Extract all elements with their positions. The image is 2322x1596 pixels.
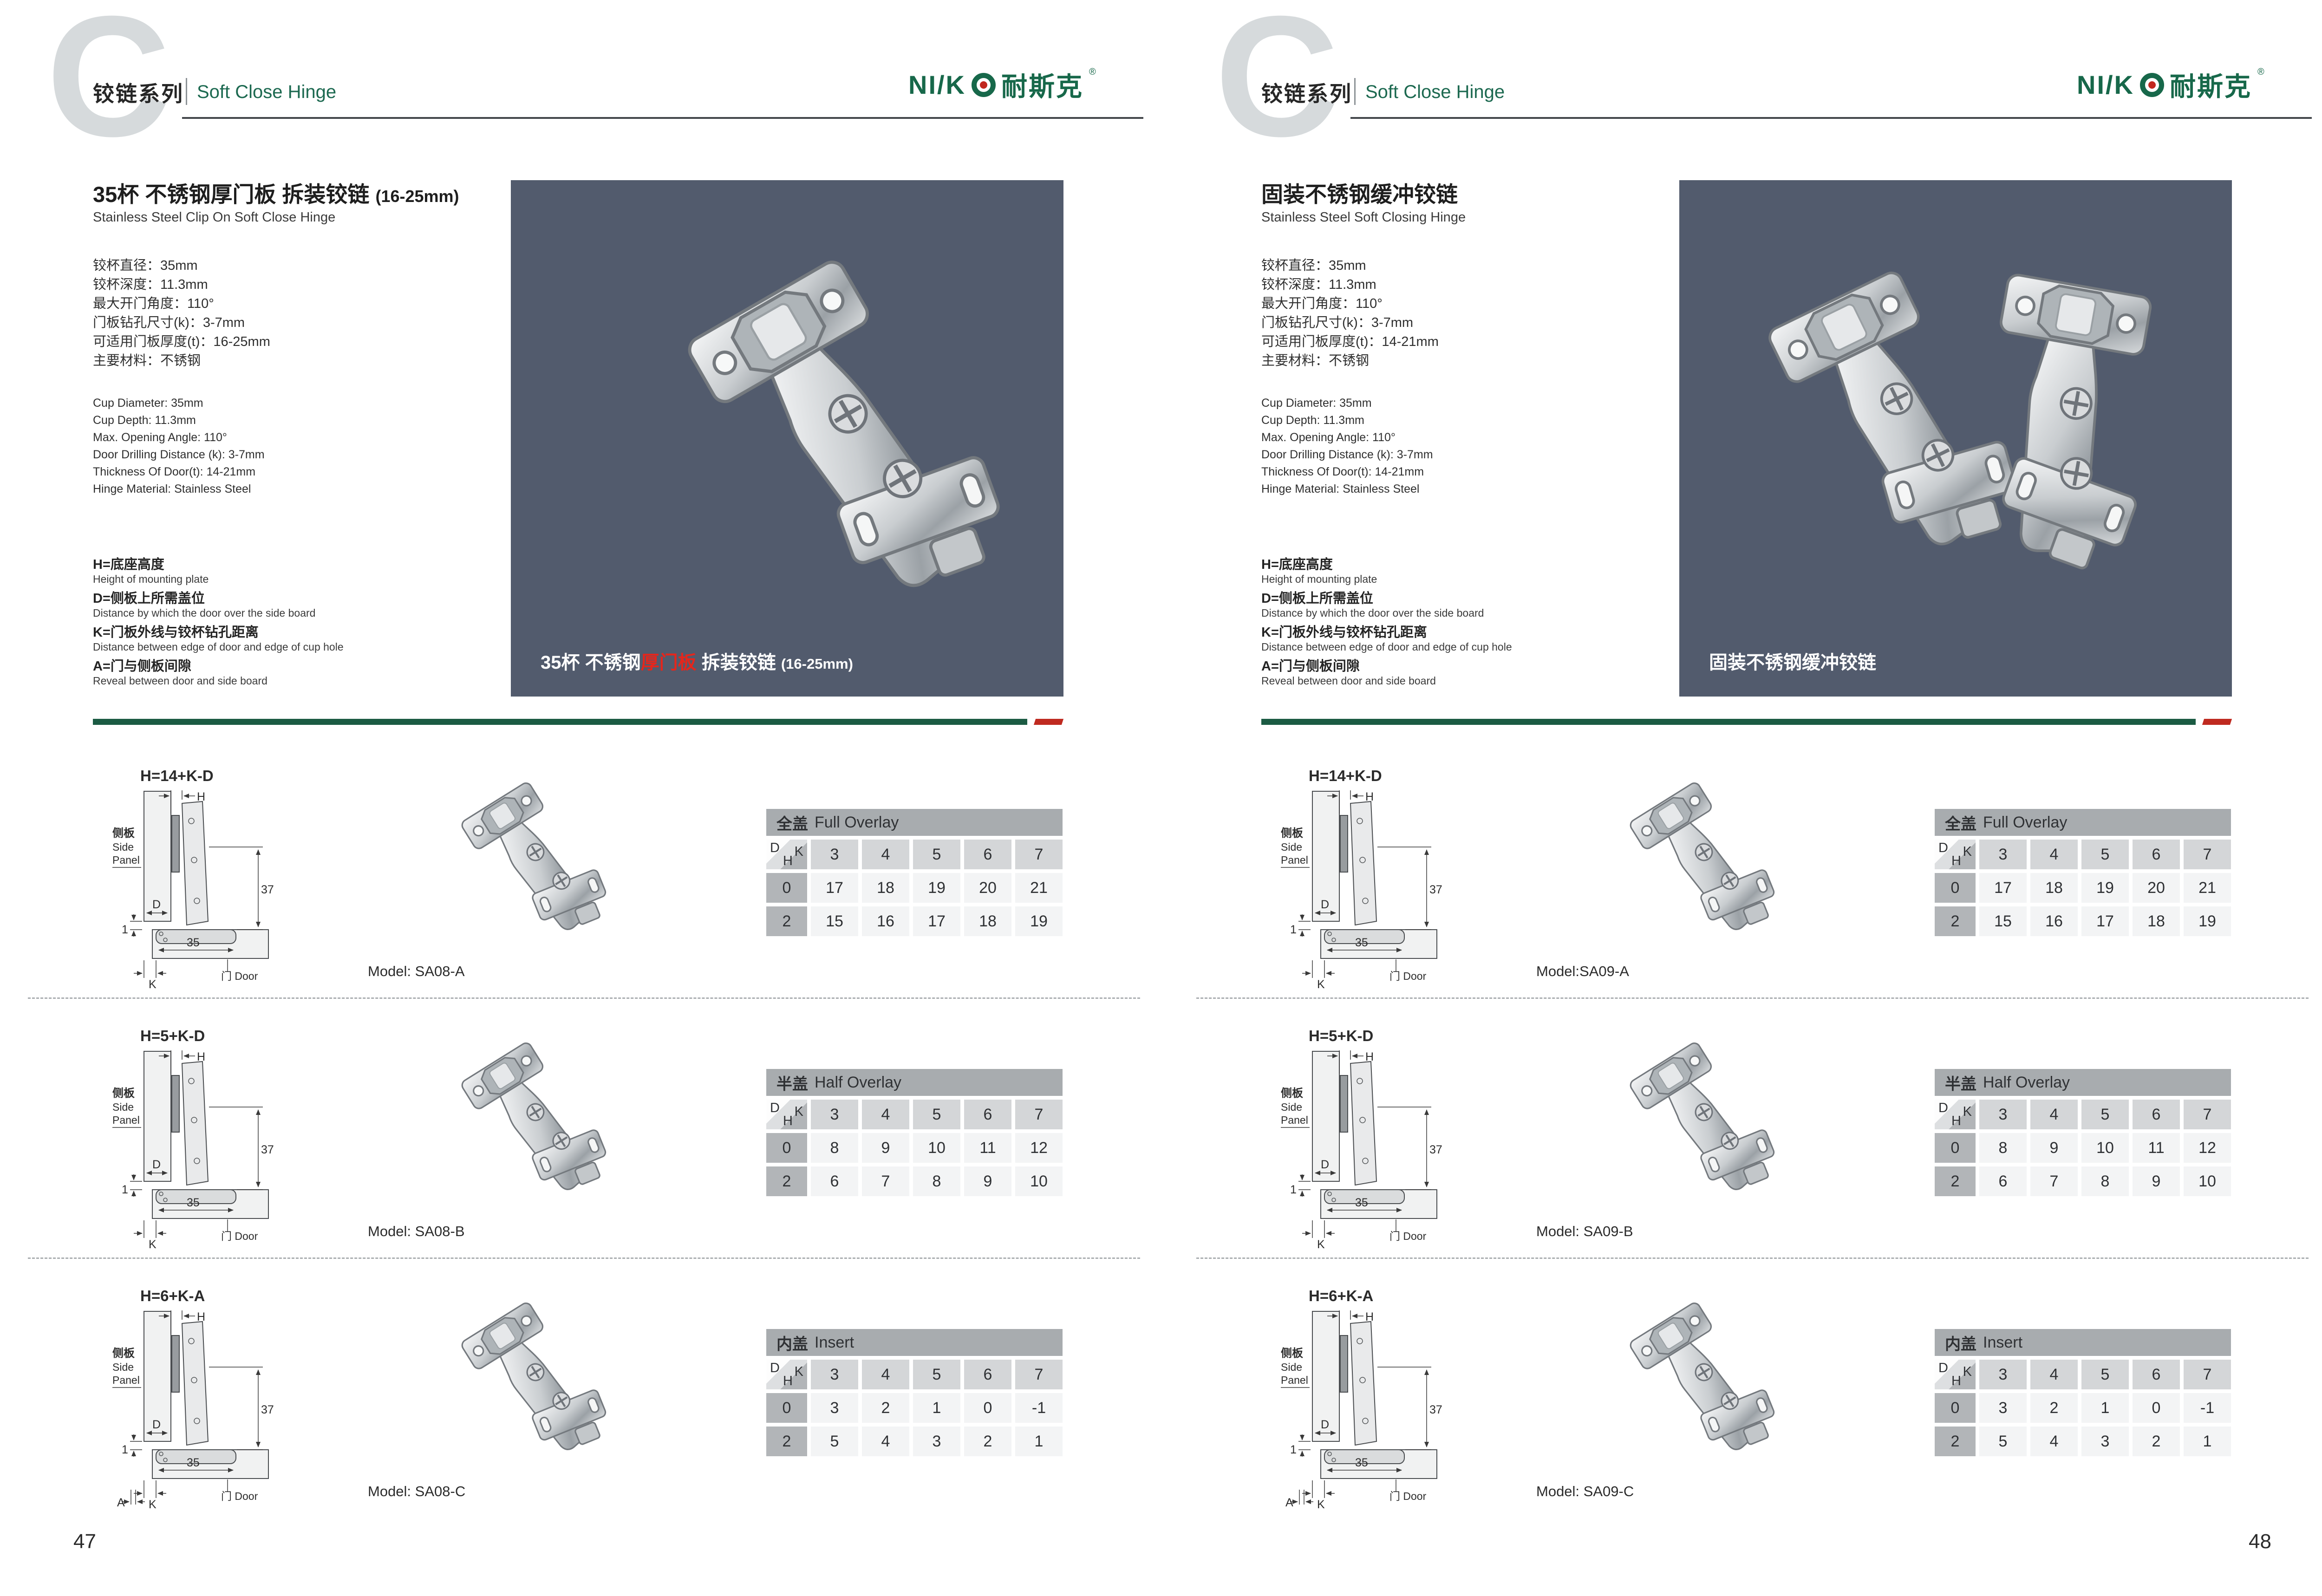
h-row-label: 2 bbox=[1935, 906, 1976, 936]
section-divider-green bbox=[93, 719, 1027, 725]
side-panel-label-en2: Panel bbox=[1281, 1114, 1308, 1126]
model-number: Model: SA08-B bbox=[368, 1223, 465, 1240]
table-value: 19 bbox=[1015, 906, 1063, 936]
product-title-cn-text: 固装不锈钢缓冲铰链 bbox=[1261, 182, 1458, 207]
series-title-cn: 铰链系列 bbox=[1261, 77, 1352, 108]
dim-1-label: 1 bbox=[122, 1183, 128, 1196]
header-rule bbox=[182, 117, 1143, 119]
corner-k: K bbox=[795, 1104, 803, 1120]
dim-35-label: 35 bbox=[1355, 936, 1368, 949]
spec-list-en: Cup Diameter: 35mm Cup Depth: 11.3mm Max… bbox=[93, 395, 265, 498]
dim-k-label: K bbox=[149, 1498, 157, 1511]
dim-37-label: 37 bbox=[1429, 1403, 1442, 1416]
side-panel-label-en1: Side bbox=[112, 1361, 134, 1373]
photo-caption: 35杯 不锈钢厚门板 拆装铰链 (16-25mm) bbox=[541, 647, 853, 674]
legend-d-en: Distance by which the door over the side… bbox=[93, 606, 344, 619]
dim-37-label: 37 bbox=[1429, 883, 1442, 896]
corner-k: K bbox=[795, 1364, 803, 1380]
k-header-cell: 4 bbox=[862, 840, 909, 869]
table-value: 10 bbox=[2081, 1133, 2129, 1163]
k-header-cell: 5 bbox=[913, 1100, 960, 1129]
hinge-dimension-diagram: A H D 1 37 35 K 侧板 Side Panel 门 Door bbox=[1280, 1307, 1447, 1511]
brand-logo-latin: NI/K bbox=[2077, 70, 2134, 100]
table-value: 10 bbox=[1015, 1166, 1063, 1196]
product-title-range: (16-25mm) bbox=[375, 187, 459, 206]
table-value: 19 bbox=[2184, 906, 2231, 936]
dim-d-label: D bbox=[152, 898, 161, 911]
mounting-plate-shape bbox=[1340, 1335, 1348, 1392]
brand-logo-o-icon bbox=[2140, 73, 2164, 97]
h-row-label: 2 bbox=[766, 1427, 807, 1456]
mounting-height-formula: H=6+K-A bbox=[1309, 1287, 1373, 1305]
table-value: 8 bbox=[913, 1166, 960, 1196]
page-number: 48 bbox=[2249, 1530, 2271, 1553]
table-value: 6 bbox=[1979, 1166, 2027, 1196]
model-number: Model:SA09-A bbox=[1536, 963, 1629, 980]
dim-1-label: 1 bbox=[1290, 1183, 1297, 1196]
dim-35-label: 35 bbox=[1355, 1196, 1368, 1209]
table-value: 1 bbox=[2184, 1427, 2231, 1456]
brand-logo: NI/K 耐斯克 ® bbox=[2077, 66, 2264, 104]
h-row-label: 2 bbox=[766, 906, 807, 936]
dim-h-label: H bbox=[1365, 790, 1374, 803]
corner-d: D bbox=[1938, 1101, 1948, 1116]
table-value: 5 bbox=[1979, 1427, 2027, 1456]
table-value: 18 bbox=[862, 873, 909, 903]
k-header-cell: 7 bbox=[2184, 1360, 2231, 1389]
h-row-label: 0 bbox=[766, 1133, 807, 1163]
k-header-cell: 6 bbox=[2133, 840, 2180, 869]
door-label: 门 Door bbox=[1389, 1490, 1427, 1502]
h-row-label: 0 bbox=[766, 873, 807, 903]
table-value: 15 bbox=[1979, 906, 2027, 936]
page-number: 47 bbox=[73, 1530, 96, 1553]
hinge-arm-shape bbox=[1350, 1322, 1376, 1445]
table-corner-cell: D K H bbox=[1935, 1100, 1976, 1129]
corner-h: H bbox=[1951, 853, 1961, 869]
row-divider-dashed bbox=[1196, 1257, 2309, 1259]
dim-d-label: D bbox=[152, 1158, 161, 1171]
photo-caption-range: (16-25mm) bbox=[781, 656, 853, 672]
k-header-cell: 4 bbox=[2030, 1360, 2078, 1389]
table-value: 12 bbox=[1015, 1133, 1063, 1163]
photo-caption-post: 拆装铰链 bbox=[697, 652, 781, 673]
overlay-table-title-cn: 内盖 bbox=[776, 1331, 808, 1354]
brand-logo-cn: 耐斯克 bbox=[2170, 66, 2252, 104]
hinge-arm-shape bbox=[1350, 801, 1376, 925]
table-value: 8 bbox=[2081, 1166, 2129, 1196]
overlay-table-grid: D K H 3 4 5 6 7 0 3 2 1 0 -1 2 5 4 3 2 bbox=[1935, 1360, 2231, 1456]
table-value: 3 bbox=[811, 1393, 858, 1423]
spec-list-cn: 铰杯直径：35mm 铰杯深度：11.3mm 最大开门角度：110° 门板钻孔尺寸… bbox=[93, 256, 270, 371]
legend-k-en: Distance between edge of door and edge o… bbox=[1261, 640, 1512, 653]
brand-logo: NI/K 耐斯克 ® bbox=[908, 66, 1096, 104]
mounting-plate-shape bbox=[172, 1075, 179, 1132]
table-value: 1 bbox=[1015, 1427, 1063, 1456]
corner-h: H bbox=[1951, 1114, 1961, 1129]
product-title-en: Stainless Steel Clip On Soft Close Hinge bbox=[93, 210, 335, 225]
legend-k-cn: K=门板外线与铰杯钻孔距离 bbox=[1261, 625, 1512, 640]
table-value: 15 bbox=[811, 906, 858, 936]
overlay-table-title: 内盖 Insert bbox=[1935, 1329, 2231, 1356]
overlay-table-title-en: Full Overlay bbox=[815, 814, 899, 832]
row-divider-dashed bbox=[28, 997, 1140, 999]
k-header-cell: 7 bbox=[2184, 1100, 2231, 1129]
legend-d-cn: D=侧板上所需盖位 bbox=[1261, 591, 1512, 606]
overlay-table-title: 全盖 Full Overlay bbox=[1935, 809, 2231, 836]
table-value: 21 bbox=[1015, 873, 1063, 903]
k-header-cell: 6 bbox=[2133, 1360, 2180, 1389]
table-value: 17 bbox=[811, 873, 858, 903]
h-row-label: 0 bbox=[766, 1393, 807, 1423]
legend-d-en: Distance by which the door over the side… bbox=[1261, 606, 1512, 619]
table-value: 7 bbox=[2030, 1166, 2078, 1196]
table-value: 17 bbox=[913, 906, 960, 936]
photo-caption: 固装不锈钢缓冲铰链 bbox=[1709, 647, 1876, 674]
legend-a-en: Reveal between door and side board bbox=[1261, 674, 1512, 687]
k-header-cell: 6 bbox=[964, 840, 1011, 869]
table-value: 2 bbox=[2133, 1427, 2180, 1456]
table-value: 7 bbox=[862, 1166, 909, 1196]
mounting-plate-shape bbox=[172, 1335, 179, 1392]
dim-h-label: H bbox=[197, 1310, 205, 1323]
side-panel-label-cn: 侧板 bbox=[1281, 827, 1304, 840]
overlay-table-title: 半盖 Half Overlay bbox=[766, 1069, 1063, 1096]
dim-d-label: D bbox=[1321, 1418, 1329, 1431]
legend-h-en: Height of mounting plate bbox=[1261, 573, 1512, 586]
registered-mark: ® bbox=[2257, 67, 2264, 78]
mounting-plate-shape bbox=[1340, 815, 1348, 872]
dim-37-label: 37 bbox=[261, 883, 274, 896]
table-value: 5 bbox=[811, 1427, 858, 1456]
dim-a-label: A bbox=[1285, 1496, 1293, 1509]
legend-h-en: Height of mounting plate bbox=[93, 573, 344, 586]
model-number: Model: SA09-B bbox=[1536, 1223, 1633, 1240]
table-value: 9 bbox=[964, 1166, 1011, 1196]
table-value: 9 bbox=[862, 1133, 909, 1163]
overlay-table: 半盖 Half Overlay D K H 3 4 5 6 7 0 8 9 10… bbox=[766, 1069, 1063, 1196]
table-value: 10 bbox=[2184, 1166, 2231, 1196]
table-value: 3 bbox=[2081, 1427, 2129, 1456]
side-panel-label-en1: Side bbox=[112, 1101, 134, 1113]
dim-h-label: H bbox=[197, 1050, 205, 1063]
k-header-cell: 7 bbox=[2184, 840, 2231, 869]
photo-caption-red: 厚门板 bbox=[641, 652, 697, 673]
table-value: 2 bbox=[964, 1427, 1011, 1456]
product-photo-hinge-illustration bbox=[1679, 180, 2232, 697]
h-row-label: 0 bbox=[1935, 873, 1976, 903]
k-header-cell: 4 bbox=[862, 1360, 909, 1389]
variant-photo-hinge-illustration bbox=[381, 1010, 687, 1224]
k-header-cell: 5 bbox=[2081, 1100, 2129, 1129]
hinge-dimension-diagram: H D 1 37 35 K 侧板 Side Panel 门 Door bbox=[111, 787, 279, 991]
table-value: 3 bbox=[913, 1427, 960, 1456]
k-header-cell: 5 bbox=[913, 840, 960, 869]
table-value: 19 bbox=[913, 873, 960, 903]
hinge-variant-row: H=6+K-A bbox=[0, 1263, 1168, 1523]
product-photo: 35杯 不锈钢厚门板 拆装铰链 (16-25mm) bbox=[511, 180, 1063, 697]
dim-1-label: 1 bbox=[122, 1443, 128, 1456]
overlay-table-grid: D K H 3 4 5 6 7 0 3 2 1 0 -1 2 5 4 3 2 bbox=[766, 1360, 1063, 1456]
dim-35-label: 35 bbox=[1355, 1456, 1368, 1469]
h-row-label: 0 bbox=[1935, 1133, 1976, 1163]
legend-a-cn: A=门与侧板间隙 bbox=[93, 658, 344, 674]
k-header-cell: 5 bbox=[913, 1360, 960, 1389]
brand-logo-o-icon bbox=[972, 73, 996, 97]
side-panel-label-cn: 侧板 bbox=[112, 1087, 135, 1100]
corner-d: D bbox=[770, 1101, 780, 1116]
corner-k: K bbox=[795, 844, 803, 860]
dim-h-label: H bbox=[1365, 1310, 1374, 1323]
table-corner-cell: D K H bbox=[766, 1360, 807, 1389]
dim-37-label: 37 bbox=[261, 1143, 274, 1156]
dim-h-label: H bbox=[197, 790, 205, 803]
door-label: 门 Door bbox=[1389, 1230, 1427, 1242]
legend-a-en: Reveal between door and side board bbox=[93, 674, 344, 687]
product-photo-hinge-illustration bbox=[511, 180, 1063, 697]
header-separator bbox=[1354, 78, 1356, 105]
table-value: 18 bbox=[2133, 906, 2180, 936]
photo-caption-pre: 固装不锈钢缓冲铰链 bbox=[1709, 652, 1876, 673]
corner-k: K bbox=[1963, 1104, 1972, 1120]
dim-1-label: 1 bbox=[1290, 923, 1297, 936]
section-divider-green bbox=[1261, 719, 2196, 725]
overlay-table-title-cn: 半盖 bbox=[776, 1071, 808, 1094]
table-value: 4 bbox=[862, 1427, 909, 1456]
section-divider-red bbox=[2202, 719, 2232, 725]
hinge-dimension-diagram: H D 1 37 35 K 侧板 Side Panel 门 Door bbox=[111, 1047, 279, 1251]
k-header-cell: 5 bbox=[2081, 1360, 2129, 1389]
variant-rows: H=14+K-D bbox=[1168, 743, 2322, 1523]
overlay-table-title-cn: 内盖 bbox=[1945, 1331, 1976, 1354]
overlay-table-title-cn: 半盖 bbox=[1945, 1071, 1976, 1094]
dimension-legend: H=底座高度 Height of mounting plate D=侧板上所需盖… bbox=[93, 552, 344, 687]
door-label: 门 Door bbox=[1389, 970, 1427, 982]
table-value: 2 bbox=[2030, 1393, 2078, 1423]
hinge-variant-row: H=5+K-D bbox=[1168, 1003, 2322, 1263]
table-value: 18 bbox=[2030, 873, 2078, 903]
k-header-cell: 4 bbox=[862, 1100, 909, 1129]
dim-d-label: D bbox=[1321, 898, 1329, 911]
dim-a-label: A bbox=[117, 1496, 125, 1509]
overlay-table-title: 内盖 Insert bbox=[766, 1329, 1063, 1356]
model-number: Model: SA08-A bbox=[368, 963, 465, 980]
row-divider-dashed bbox=[1196, 997, 2309, 999]
dim-a-group: A bbox=[1285, 1490, 1313, 1509]
corner-h: H bbox=[783, 1114, 793, 1129]
table-corner-cell: D K H bbox=[1935, 840, 1976, 869]
hinge-arm-shape bbox=[182, 1062, 208, 1185]
dimension-legend: H=底座高度 Height of mounting plate D=侧板上所需盖… bbox=[1261, 552, 1512, 687]
header-rule bbox=[1350, 117, 2312, 119]
header-separator bbox=[186, 78, 187, 105]
table-corner-cell: D K H bbox=[766, 1100, 807, 1129]
table-value: 20 bbox=[2133, 873, 2180, 903]
legend-k-en: Distance between edge of door and edge o… bbox=[93, 640, 344, 653]
legend-d-cn: D=侧板上所需盖位 bbox=[93, 591, 344, 606]
catalog-page-right: C 铰链系列 Soft Close Hinge NI/K 耐斯克 ® 固装不锈钢… bbox=[1168, 0, 2322, 1596]
dim-1-label: 1 bbox=[122, 923, 128, 936]
variant-photo-hinge-illustration bbox=[381, 750, 687, 964]
table-value: 1 bbox=[913, 1393, 960, 1423]
side-panel-label-en2: Panel bbox=[112, 854, 140, 866]
table-value: 9 bbox=[2133, 1166, 2180, 1196]
overlay-table-title: 全盖 Full Overlay bbox=[766, 809, 1063, 836]
dim-35-label: 35 bbox=[187, 1456, 200, 1469]
hinge-arm-shape bbox=[182, 1322, 208, 1445]
product-title-en: Stainless Steel Soft Closing Hinge bbox=[1261, 210, 1466, 225]
overlay-table-title-en: Full Overlay bbox=[1983, 814, 2067, 832]
mounting-plate-shape bbox=[172, 815, 179, 872]
side-panel-label-en1: Side bbox=[1281, 841, 1302, 853]
brand-logo-dot-icon bbox=[980, 81, 987, 89]
hinge-variant-row: H=14+K-D bbox=[1168, 743, 2322, 1003]
spec-list-en: Cup Diameter: 35mm Cup Depth: 11.3mm Max… bbox=[1261, 395, 1433, 498]
brand-logo-cn: 耐斯克 bbox=[1001, 66, 1083, 104]
k-header-cell: 3 bbox=[811, 1360, 858, 1389]
corner-h: H bbox=[783, 853, 793, 869]
variant-photo-hinge-illustration bbox=[1549, 750, 1856, 964]
mounting-height-formula: H=14+K-D bbox=[140, 767, 214, 785]
side-panel-label-en2: Panel bbox=[1281, 1374, 1308, 1386]
table-value: 12 bbox=[2184, 1133, 2231, 1163]
table-value: 11 bbox=[964, 1133, 1011, 1163]
mounting-height-formula: H=6+K-A bbox=[140, 1287, 205, 1305]
table-value: 16 bbox=[862, 906, 909, 936]
table-value: 3 bbox=[1979, 1393, 2027, 1423]
overlay-table-title: 半盖 Half Overlay bbox=[1935, 1069, 2231, 1096]
dim-35-label: 35 bbox=[187, 936, 200, 949]
dim-k-label: K bbox=[1317, 1498, 1325, 1511]
dim-37-label: 37 bbox=[1429, 1143, 1442, 1156]
table-value: 19 bbox=[2081, 873, 2129, 903]
side-panel-label-en2: Panel bbox=[112, 1374, 140, 1386]
k-header-cell: 4 bbox=[2030, 1100, 2078, 1129]
variant-photo-hinge-illustration bbox=[1549, 1010, 1856, 1224]
k-header-cell: 3 bbox=[1979, 1100, 2027, 1129]
corner-d: D bbox=[1938, 1361, 1948, 1376]
hinge-variant-row: H=14+K-D bbox=[0, 743, 1168, 1003]
k-header-cell: 3 bbox=[811, 1100, 858, 1129]
overlay-table-grid: D K H 3 4 5 6 7 0 17 18 19 20 21 2 15 16… bbox=[766, 840, 1063, 936]
variant-photo-hinge-illustration bbox=[381, 1270, 687, 1484]
overlay-table: 全盖 Full Overlay D K H 3 4 5 6 7 0 17 18 … bbox=[1935, 809, 2231, 936]
table-corner-cell: D K H bbox=[1935, 1360, 1976, 1389]
overlay-table: 内盖 Insert D K H 3 4 5 6 7 0 3 2 1 0 -1 bbox=[766, 1329, 1063, 1456]
k-header-cell: 6 bbox=[964, 1100, 1011, 1129]
overlay-table-grid: D K H 3 4 5 6 7 0 17 18 19 20 21 2 15 16… bbox=[1935, 840, 2231, 936]
dim-a-group: A bbox=[117, 1490, 145, 1509]
side-panel-label-en2: Panel bbox=[1281, 854, 1308, 866]
spec-list-cn: 铰杯直径：35mm 铰杯深度：11.3mm 最大开门角度：110° 门板钻孔尺寸… bbox=[1261, 256, 1439, 371]
legend-h-cn: H=底座高度 bbox=[1261, 557, 1512, 573]
table-value: 18 bbox=[964, 906, 1011, 936]
overlay-table-title-cn: 全盖 bbox=[1945, 811, 1976, 834]
table-value: 20 bbox=[964, 873, 1011, 903]
k-header-cell: 5 bbox=[2081, 840, 2129, 869]
brand-logo-latin: NI/K bbox=[908, 70, 966, 100]
side-panel-label-cn: 侧板 bbox=[1281, 1347, 1304, 1360]
dim-k-label: K bbox=[149, 978, 157, 991]
dim-35-label: 35 bbox=[187, 1196, 200, 1209]
series-title-en: Soft Close Hinge bbox=[197, 82, 336, 103]
side-panel-label-en2: Panel bbox=[112, 1114, 140, 1126]
corner-k: K bbox=[1963, 1364, 1972, 1380]
legend-h-cn: H=底座高度 bbox=[93, 557, 344, 573]
product-photo: 固装不锈钢缓冲铰链 bbox=[1679, 180, 2232, 697]
overlay-table-title-en: Half Overlay bbox=[815, 1074, 901, 1092]
photo-caption-pre: 35杯 不锈钢 bbox=[541, 652, 641, 673]
overlay-table: 内盖 Insert D K H 3 4 5 6 7 0 3 2 1 0 -1 bbox=[1935, 1329, 2231, 1456]
table-value: 11 bbox=[2133, 1133, 2180, 1163]
k-header-cell: 3 bbox=[811, 840, 858, 869]
table-value: 9 bbox=[2030, 1133, 2078, 1163]
table-value: -1 bbox=[1015, 1393, 1063, 1423]
h-row-label: 2 bbox=[766, 1166, 807, 1196]
hinge-dimension-diagram: A H D 1 37 35 K 侧板 Side Panel 门 Door bbox=[111, 1307, 279, 1511]
mounting-height-formula: H=5+K-D bbox=[140, 1027, 205, 1045]
overlay-table-title-cn: 全盖 bbox=[776, 811, 808, 834]
hinge-variant-row: H=5+K-D bbox=[0, 1003, 1168, 1263]
side-panel-label-en1: Side bbox=[1281, 1361, 1302, 1373]
table-value: 8 bbox=[811, 1133, 858, 1163]
table-value: 10 bbox=[913, 1133, 960, 1163]
catalog-sheet: C 铰链系列 Soft Close Hinge NI/K 耐斯克 ® 35杯 不… bbox=[0, 0, 2322, 1596]
overlay-table: 半盖 Half Overlay D K H 3 4 5 6 7 0 8 9 10… bbox=[1935, 1069, 2231, 1196]
registered-mark: ® bbox=[1089, 67, 1096, 78]
side-panel-label-en1: Side bbox=[1281, 1101, 1302, 1113]
section-divider-red bbox=[1034, 719, 1063, 725]
table-value: 0 bbox=[964, 1393, 1011, 1423]
table-value: -1 bbox=[2184, 1393, 2231, 1423]
table-value: 4 bbox=[2030, 1427, 2078, 1456]
product-title-cn: 固装不锈钢缓冲铰链 bbox=[1261, 176, 1458, 208]
k-header-cell: 7 bbox=[1015, 1100, 1063, 1129]
row-divider-dashed bbox=[28, 1257, 1140, 1259]
variant-rows: H=14+K-D bbox=[0, 743, 1168, 1523]
k-header-cell: 3 bbox=[1979, 840, 2027, 869]
table-value: 17 bbox=[1979, 873, 2027, 903]
side-panel-label-cn: 侧板 bbox=[112, 827, 135, 840]
overlay-table-title-en: Half Overlay bbox=[1983, 1074, 2070, 1092]
side-panel-label-cn: 侧板 bbox=[1281, 1087, 1304, 1100]
side-panel-label-cn: 侧板 bbox=[112, 1347, 135, 1360]
legend-k-cn: K=门板外线与铰杯钻孔距离 bbox=[93, 625, 344, 640]
k-header-cell: 3 bbox=[1979, 1360, 2027, 1389]
corner-k: K bbox=[1963, 844, 1972, 860]
table-value: 0 bbox=[2133, 1393, 2180, 1423]
k-header-cell: 7 bbox=[1015, 840, 1063, 869]
hinge-arm-shape bbox=[1350, 1062, 1376, 1185]
h-row-label: 2 bbox=[1935, 1166, 1976, 1196]
door-label: 门 Door bbox=[221, 970, 258, 982]
corner-h: H bbox=[1951, 1374, 1961, 1389]
dim-h-label: H bbox=[1365, 1050, 1374, 1063]
hinge-dimension-diagram: H D 1 37 35 K 侧板 Side Panel 门 Door bbox=[1280, 1047, 1447, 1251]
hinge-arm-shape bbox=[182, 801, 208, 925]
corner-d: D bbox=[1938, 840, 1948, 856]
dim-1-label: 1 bbox=[1290, 1443, 1297, 1456]
dim-d-label: D bbox=[1321, 1158, 1329, 1171]
overlay-table: 全盖 Full Overlay D K H 3 4 5 6 7 0 17 18 … bbox=[766, 809, 1063, 936]
corner-d: D bbox=[770, 840, 780, 856]
dim-k-label: K bbox=[1317, 978, 1325, 991]
dim-k-label: K bbox=[149, 1238, 157, 1251]
model-number: Model: SA09-C bbox=[1536, 1483, 1634, 1500]
door-label: 门 Door bbox=[221, 1230, 258, 1242]
dim-k-label: K bbox=[1317, 1238, 1325, 1251]
h-row-label: 2 bbox=[1935, 1427, 1976, 1456]
